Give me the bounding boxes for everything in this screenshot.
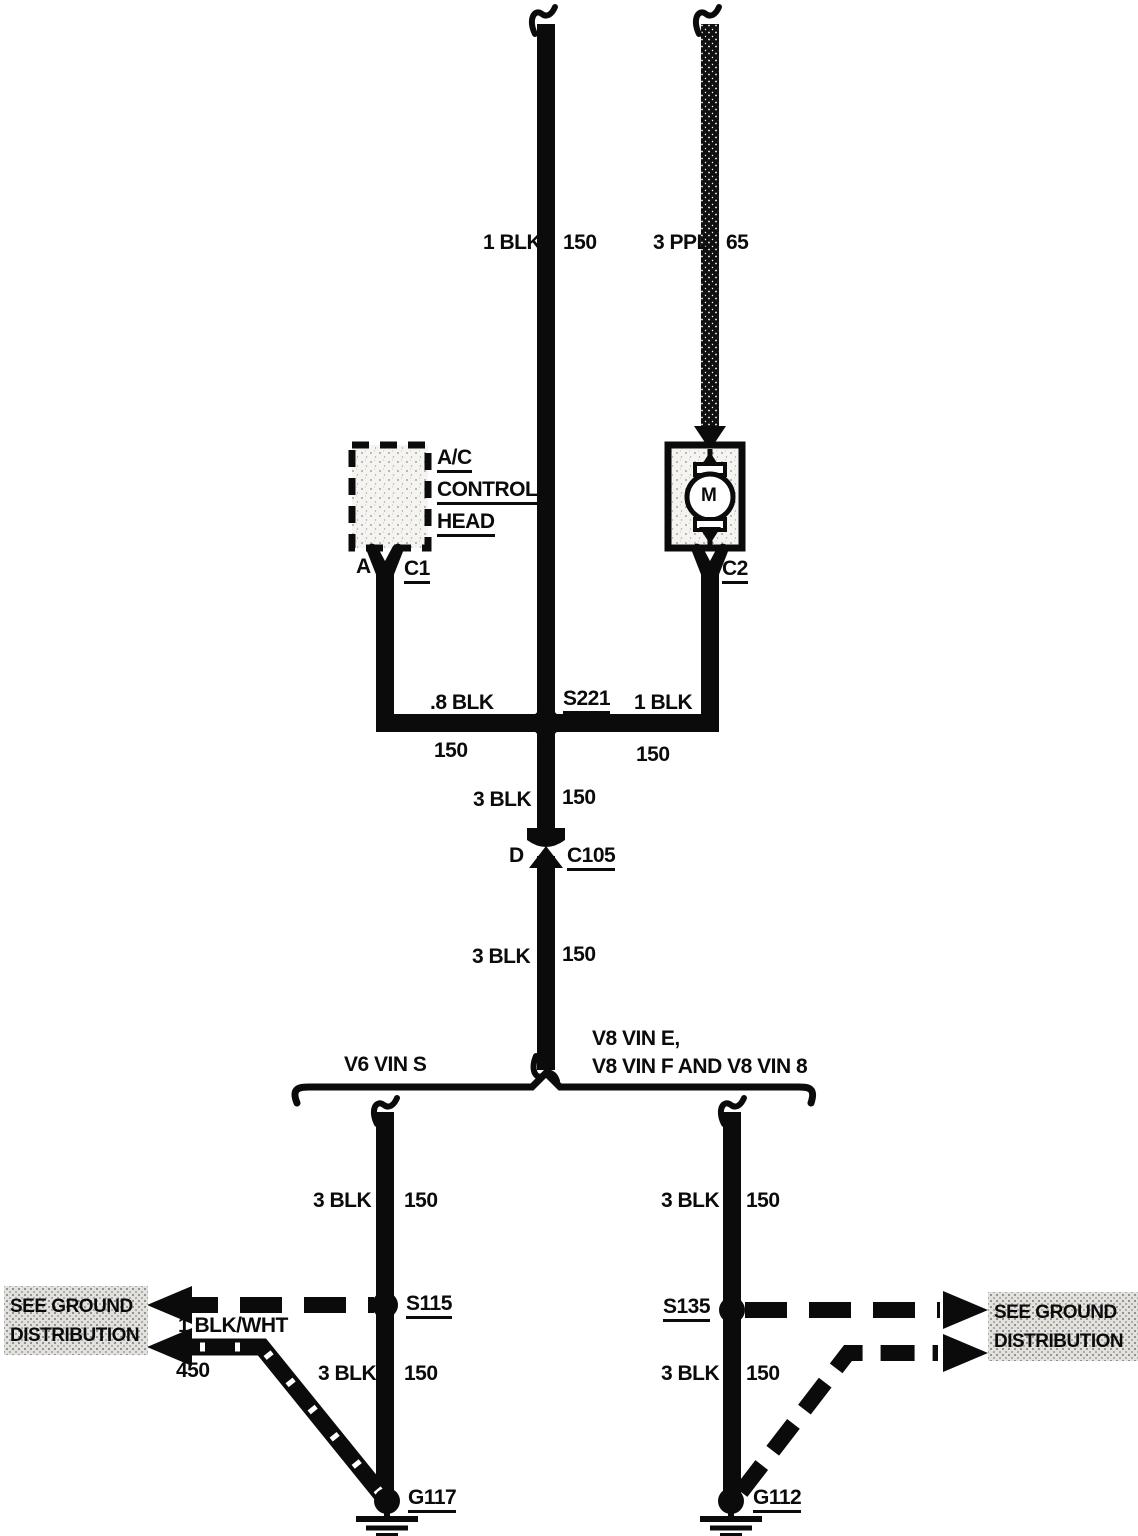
wire-1blkwht-450	[147, 1328, 381, 1494]
motor-symbol-letter: M	[701, 486, 716, 506]
see-ground-distribution-note-left: SEE GROUND DISTRIBUTION	[4, 1286, 148, 1355]
circuit-number: 150	[562, 944, 596, 966]
wire-1blk-150-main-trunk	[532, 7, 555, 1070]
splice-dot-s135	[719, 1297, 745, 1323]
pin-label: A	[356, 556, 371, 578]
dashed-wire-to-ground-distribution-right-upper	[745, 1291, 988, 1329]
pin-label: D	[509, 845, 524, 867]
splice-dot-s115	[372, 1292, 398, 1318]
branch-title-v8: V8 VIN F AND V8 VIN 8	[592, 1056, 807, 1078]
wire-3blk-150-v8-branch	[721, 1098, 744, 1494]
connector-label: C2	[722, 558, 748, 584]
wire-label: 3 BLK	[472, 946, 530, 968]
circuit-number: 65	[726, 232, 748, 254]
connector-label: C1	[404, 558, 430, 584]
ac-control-head-box	[352, 445, 428, 548]
circuit-number: 150	[563, 232, 597, 254]
wire-label: 1 BLK	[634, 692, 692, 714]
component-label-ac: HEAD	[437, 511, 495, 537]
component-label-ac: A/C	[437, 447, 472, 473]
splice-dot-s221	[532, 709, 560, 737]
connector-c105-symbol	[527, 828, 565, 868]
ground-label: G112	[753, 1487, 801, 1513]
wire-label: 3 BLK	[313, 1190, 371, 1212]
connector-label: C105	[567, 845, 615, 871]
circuit-number: 150	[636, 744, 670, 766]
circuit-number: 150	[404, 1363, 438, 1385]
arrowhead-right-upper	[943, 1291, 988, 1329]
branch-title-v8: V8 VIN E,	[592, 1028, 680, 1050]
wire-label: .8 BLK	[430, 692, 494, 714]
wire-3ppl-65	[694, 7, 726, 450]
branch-title-v6: V6 VIN S	[344, 1054, 426, 1076]
wire-label: 1 BLK/WHT	[178, 1315, 288, 1337]
circuit-number: 150	[404, 1190, 438, 1212]
circuit-number: 450	[176, 1360, 210, 1382]
component-label-ac: CONTROL	[437, 479, 537, 505]
note-line: DISTRIBUTION	[994, 1327, 1138, 1356]
wire-label: 3 PPL	[653, 232, 709, 254]
wire-label: 3 BLK	[661, 1363, 719, 1385]
splice-label: S221	[563, 688, 610, 714]
ground-label: G117	[408, 1487, 456, 1513]
wiring-diagram-page: 1 BLK 150 3 PPL 65 A/C CONTROL HEAD A C1…	[0, 0, 1138, 1536]
wire-label: 3 BLK	[473, 789, 531, 811]
splice-label: S135	[663, 1296, 710, 1322]
circuit-number: 150	[562, 787, 596, 809]
wire-label: 1 BLK	[483, 232, 541, 254]
arrowhead-right-lower	[943, 1334, 988, 1372]
note-line: SEE GROUND	[10, 1292, 142, 1321]
circuit-number: 150	[746, 1190, 780, 1212]
circuit-number: 150	[746, 1363, 780, 1385]
note-line: SEE GROUND	[994, 1298, 1138, 1327]
see-ground-distribution-note-right: SEE GROUND DISTRIBUTION	[988, 1292, 1138, 1361]
wire-label: 3 BLK	[318, 1363, 376, 1385]
note-line: DISTRIBUTION	[10, 1321, 142, 1350]
dashed-wire-to-ground-distribution-right-lower	[741, 1334, 988, 1492]
splice-label: S115	[406, 1293, 452, 1319]
wire-label: 3 BLK	[661, 1190, 719, 1212]
circuit-number: 150	[434, 740, 468, 762]
